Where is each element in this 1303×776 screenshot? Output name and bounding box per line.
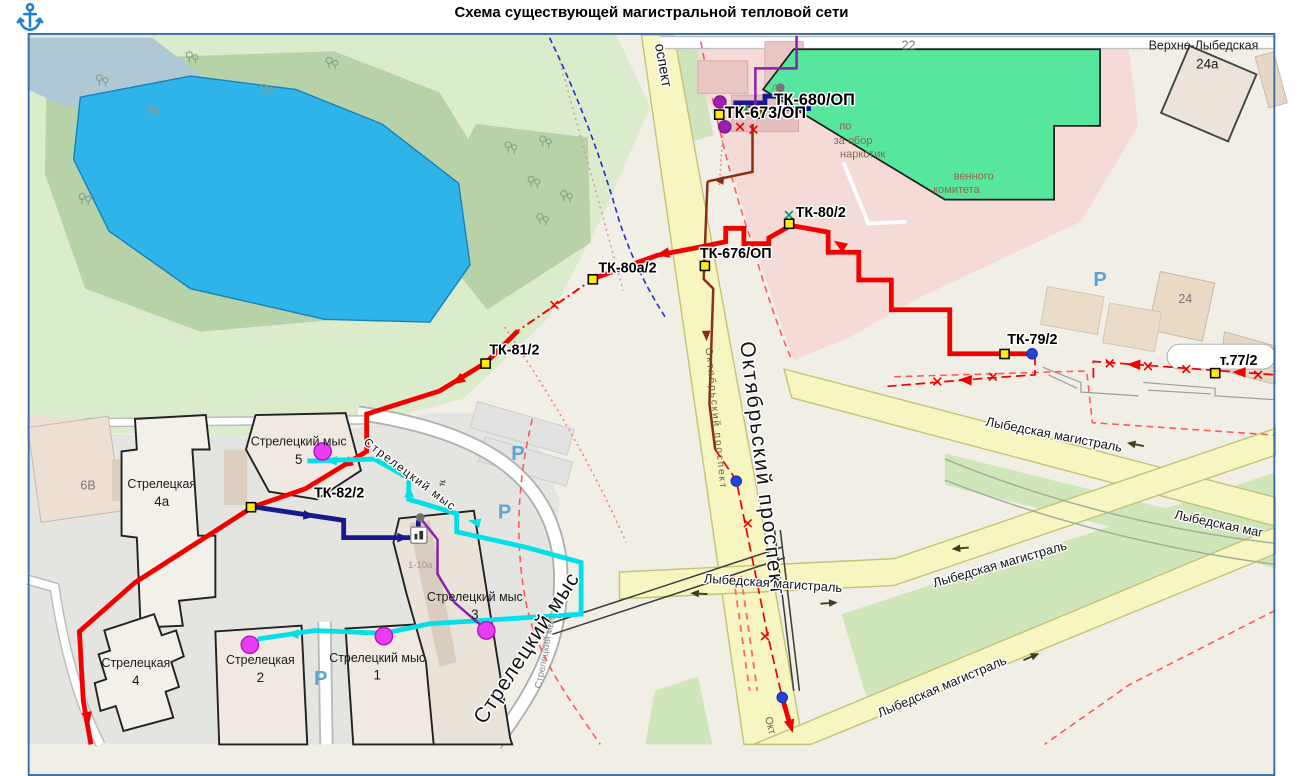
building [1103,303,1162,352]
node-square-tk-676-op[interactable] [700,261,709,270]
node-label-tk-80-2: ТК-80/2 [796,205,846,221]
bldg-label-5-num: 5 [295,452,302,467]
bldg-label-3-num: 3 [471,607,478,622]
parking-symbol: Р [314,668,327,690]
bldg-label-1-num: 1 [373,667,380,682]
poi-text: до [772,81,783,92]
consumer-circle[interactable] [375,628,392,645]
bldg-label-4a-num: 4а [154,494,169,509]
node-label-t-77-2: т.77/2 [1220,353,1258,369]
blue-point[interactable] [1027,348,1038,359]
node-label-tk-676: ТК-676/ОП [700,246,772,262]
consumer-circle[interactable] [478,622,495,639]
bldg-label-verhne-num: 24а [1196,56,1219,71]
poi-text: венного [954,170,994,182]
map-viewport[interactable]: ТК-680/ОП ТК-673/ОП ТК-80/2 ТК-676/ОП ТК… [0,33,1303,776]
building [224,450,247,506]
bldg-label-4-name: Стрелецкая [102,656,171,670]
bldg-label-2-num: 2 [257,670,264,685]
bldg-label-110a: 1-10а [408,560,433,571]
node-square-tk-673-op[interactable] [715,110,724,119]
node-label-tk-79-2: ТК-79/2 [1007,332,1057,348]
bldg-label-6v: 6В [80,479,95,493]
building [698,61,748,94]
node-square-tk-80a-2[interactable] [588,275,597,284]
scheme-page: Схема существующей магистральной теплово… [0,0,1303,776]
bldg-label-4-num: 4 [132,673,140,688]
node-label-tk-80a-2: ТК-80а/2 [598,260,656,276]
bldg-label-24: 24 [1178,292,1192,306]
node-label-tk-82-2: ТК-82/2 [314,485,364,501]
purple-consumer[interactable] [719,121,731,133]
poi-text: за обор [834,135,873,147]
junction-gray-dot[interactable] [416,513,425,522]
building-6v [28,416,122,522]
node-square-tk-82-2[interactable] [246,503,255,512]
poi-text: наркотик [840,148,885,160]
bldg-label-3-name: Стрелецкий мыс [427,590,523,604]
bldg-label-verhne-name: Верхне-Лыбедская [1149,38,1259,52]
parking-symbol: Р [1093,269,1106,291]
bldg-label-5-name: Стрелецкий мыс [251,435,347,449]
blue-point[interactable] [731,476,742,487]
node-square-tk-81-2[interactable] [481,359,490,368]
bldg-label-22: 22 [902,38,916,52]
node-label-tk-673: ТК-673/ОП [725,104,806,122]
consumer-circle[interactable] [241,636,258,653]
blue-point[interactable] [777,692,788,703]
node-square-t-77-2[interactable] [1211,369,1220,378]
bldg-label-2-name: Стрелецкая [226,653,295,667]
map-svg: ТК-680/ОП ТК-673/ОП ТК-80/2 ТК-676/ОП ТК… [0,33,1303,776]
parking-symbol: Р [498,501,511,523]
node-square-tk-79-2[interactable] [1000,349,1009,358]
node-square-tk-80-2[interactable] [785,219,794,228]
node-label-tk-81-2: ТК-81/2 [489,343,539,359]
parking-symbol: Р [511,443,524,465]
poi-text: по [839,121,851,133]
page-title: Схема существующей магистральной теплово… [0,4,1303,21]
bldg-label-4a-name: Стрелецкая [127,477,196,491]
poi-text: комитета [933,184,980,196]
bldg-label-1-name: Стрелецкий мыс [329,651,425,665]
map-poi-icon [411,527,427,543]
scheme-header: Схема существующей магистральной теплово… [0,0,1303,33]
